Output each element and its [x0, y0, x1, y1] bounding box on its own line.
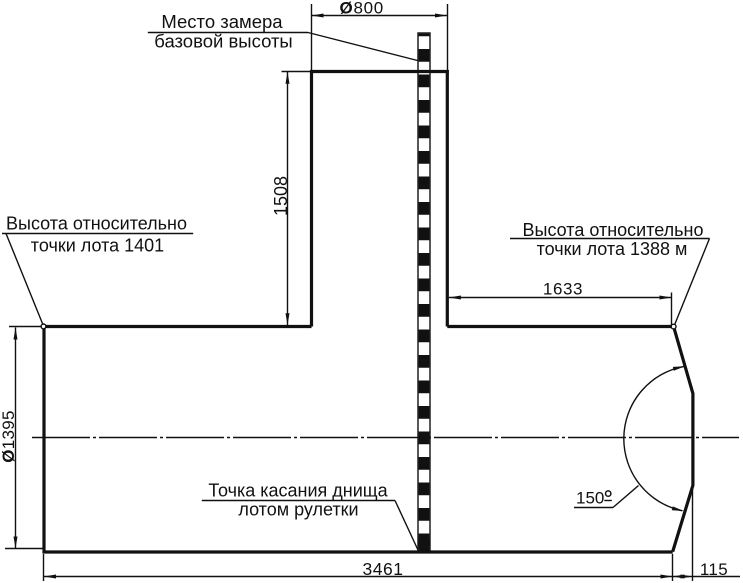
- svg-text:точки лота 1401: точки лота 1401: [31, 236, 164, 256]
- svg-text:Высота относительно: Высота относительно: [6, 214, 187, 234]
- svg-text:Точка касания днища: Точка касания днища: [208, 481, 388, 501]
- svg-text:Ø800: Ø800: [340, 0, 384, 18]
- svg-text:точки лота 1388 м: точки лота 1388 м: [537, 239, 688, 259]
- svg-text:Высота относительно: Высота относительно: [523, 220, 704, 240]
- svg-text:115: 115: [700, 560, 728, 579]
- svg-text:Место замера: Место замера: [161, 11, 283, 32]
- svg-text:1508: 1508: [271, 176, 291, 216]
- svg-text:3461: 3461: [363, 559, 404, 579]
- svg-text:1633: 1633: [543, 280, 583, 299]
- svg-text:лотом рулетки: лотом рулетки: [238, 500, 358, 520]
- svg-text:Ø1395: Ø1395: [0, 410, 18, 463]
- svg-text:базовой высоты: базовой высоты: [154, 31, 292, 52]
- svg-text:150: 150: [576, 489, 604, 508]
